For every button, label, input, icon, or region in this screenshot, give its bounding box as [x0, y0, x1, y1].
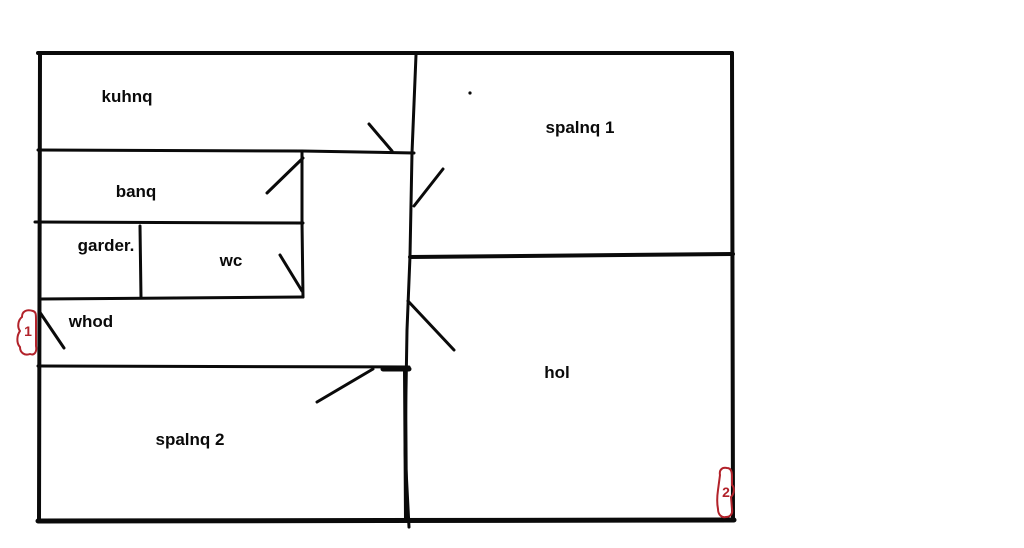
room-label-spalnq1: spalnq 1 [546, 118, 615, 137]
door-swing-kuhnq [369, 124, 392, 151]
wall-spalnq2-right-bold [405, 370, 406, 520]
door-swing-banq [267, 158, 303, 193]
wall-hol-top [410, 254, 733, 257]
wall-whod-bottom [38, 366, 409, 367]
entrance-marker-2-label: 2 [722, 484, 730, 500]
door-swing-spalnq1 [414, 169, 443, 206]
wall-outer-bottom [38, 520, 734, 521]
door-swing-spalnq2 [317, 369, 373, 402]
stray-pen-dot [468, 91, 471, 94]
wall-banq-bottom [35, 222, 303, 223]
room-label-wc: wc [219, 251, 243, 270]
wall-outer-right [732, 53, 733, 520]
wall-wc-bottom [40, 297, 303, 299]
paint-canvas: kuhnq banq garder. wc whod spalnq 1 hol … [0, 0, 1024, 548]
entrance-marker-1-label: 1 [24, 323, 32, 339]
wall-garder-wc-divider [140, 226, 141, 298]
room-label-whod: whod [68, 312, 113, 331]
room-label-hol: hol [544, 363, 570, 382]
entrance-markers-group: 1 2 [17, 310, 733, 517]
wall-kuhnq-bottom [38, 150, 414, 153]
wall-outer-left [39, 53, 40, 521]
door-swing-hol [408, 301, 454, 350]
room-label-kuhnq: kuhnq [102, 87, 153, 106]
room-label-spalnq2: spalnq 2 [156, 430, 225, 449]
floor-plan-drawing: kuhnq banq garder. wc whod spalnq 1 hol … [0, 0, 1024, 548]
door-swing-wc [280, 255, 302, 291]
room-labels-group: kuhnq banq garder. wc whod spalnq 1 hol … [68, 87, 615, 449]
door-swing-whod [39, 311, 64, 348]
room-label-banq: banq [116, 182, 157, 201]
walls-group [35, 53, 734, 527]
room-label-garder: garder. [78, 236, 135, 255]
door-swings-group [39, 124, 454, 402]
